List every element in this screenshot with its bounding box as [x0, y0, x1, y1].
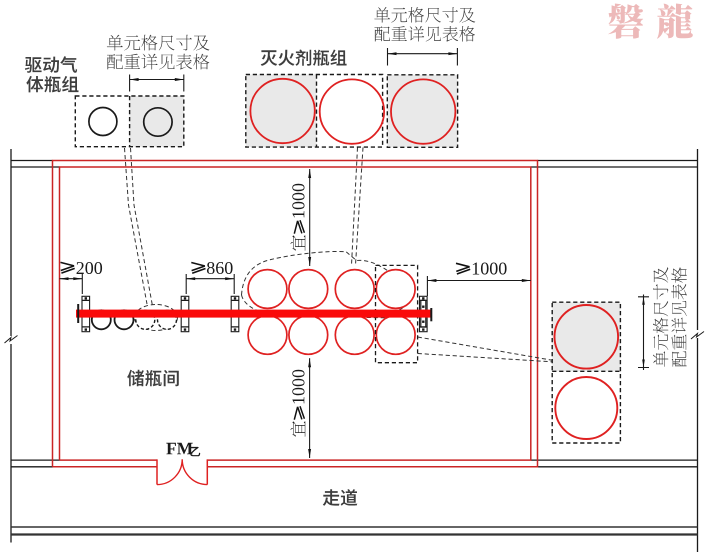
svg-text:1000: 1000: [471, 259, 507, 279]
svg-text:860: 860: [206, 258, 233, 278]
svg-text:200: 200: [76, 258, 103, 278]
